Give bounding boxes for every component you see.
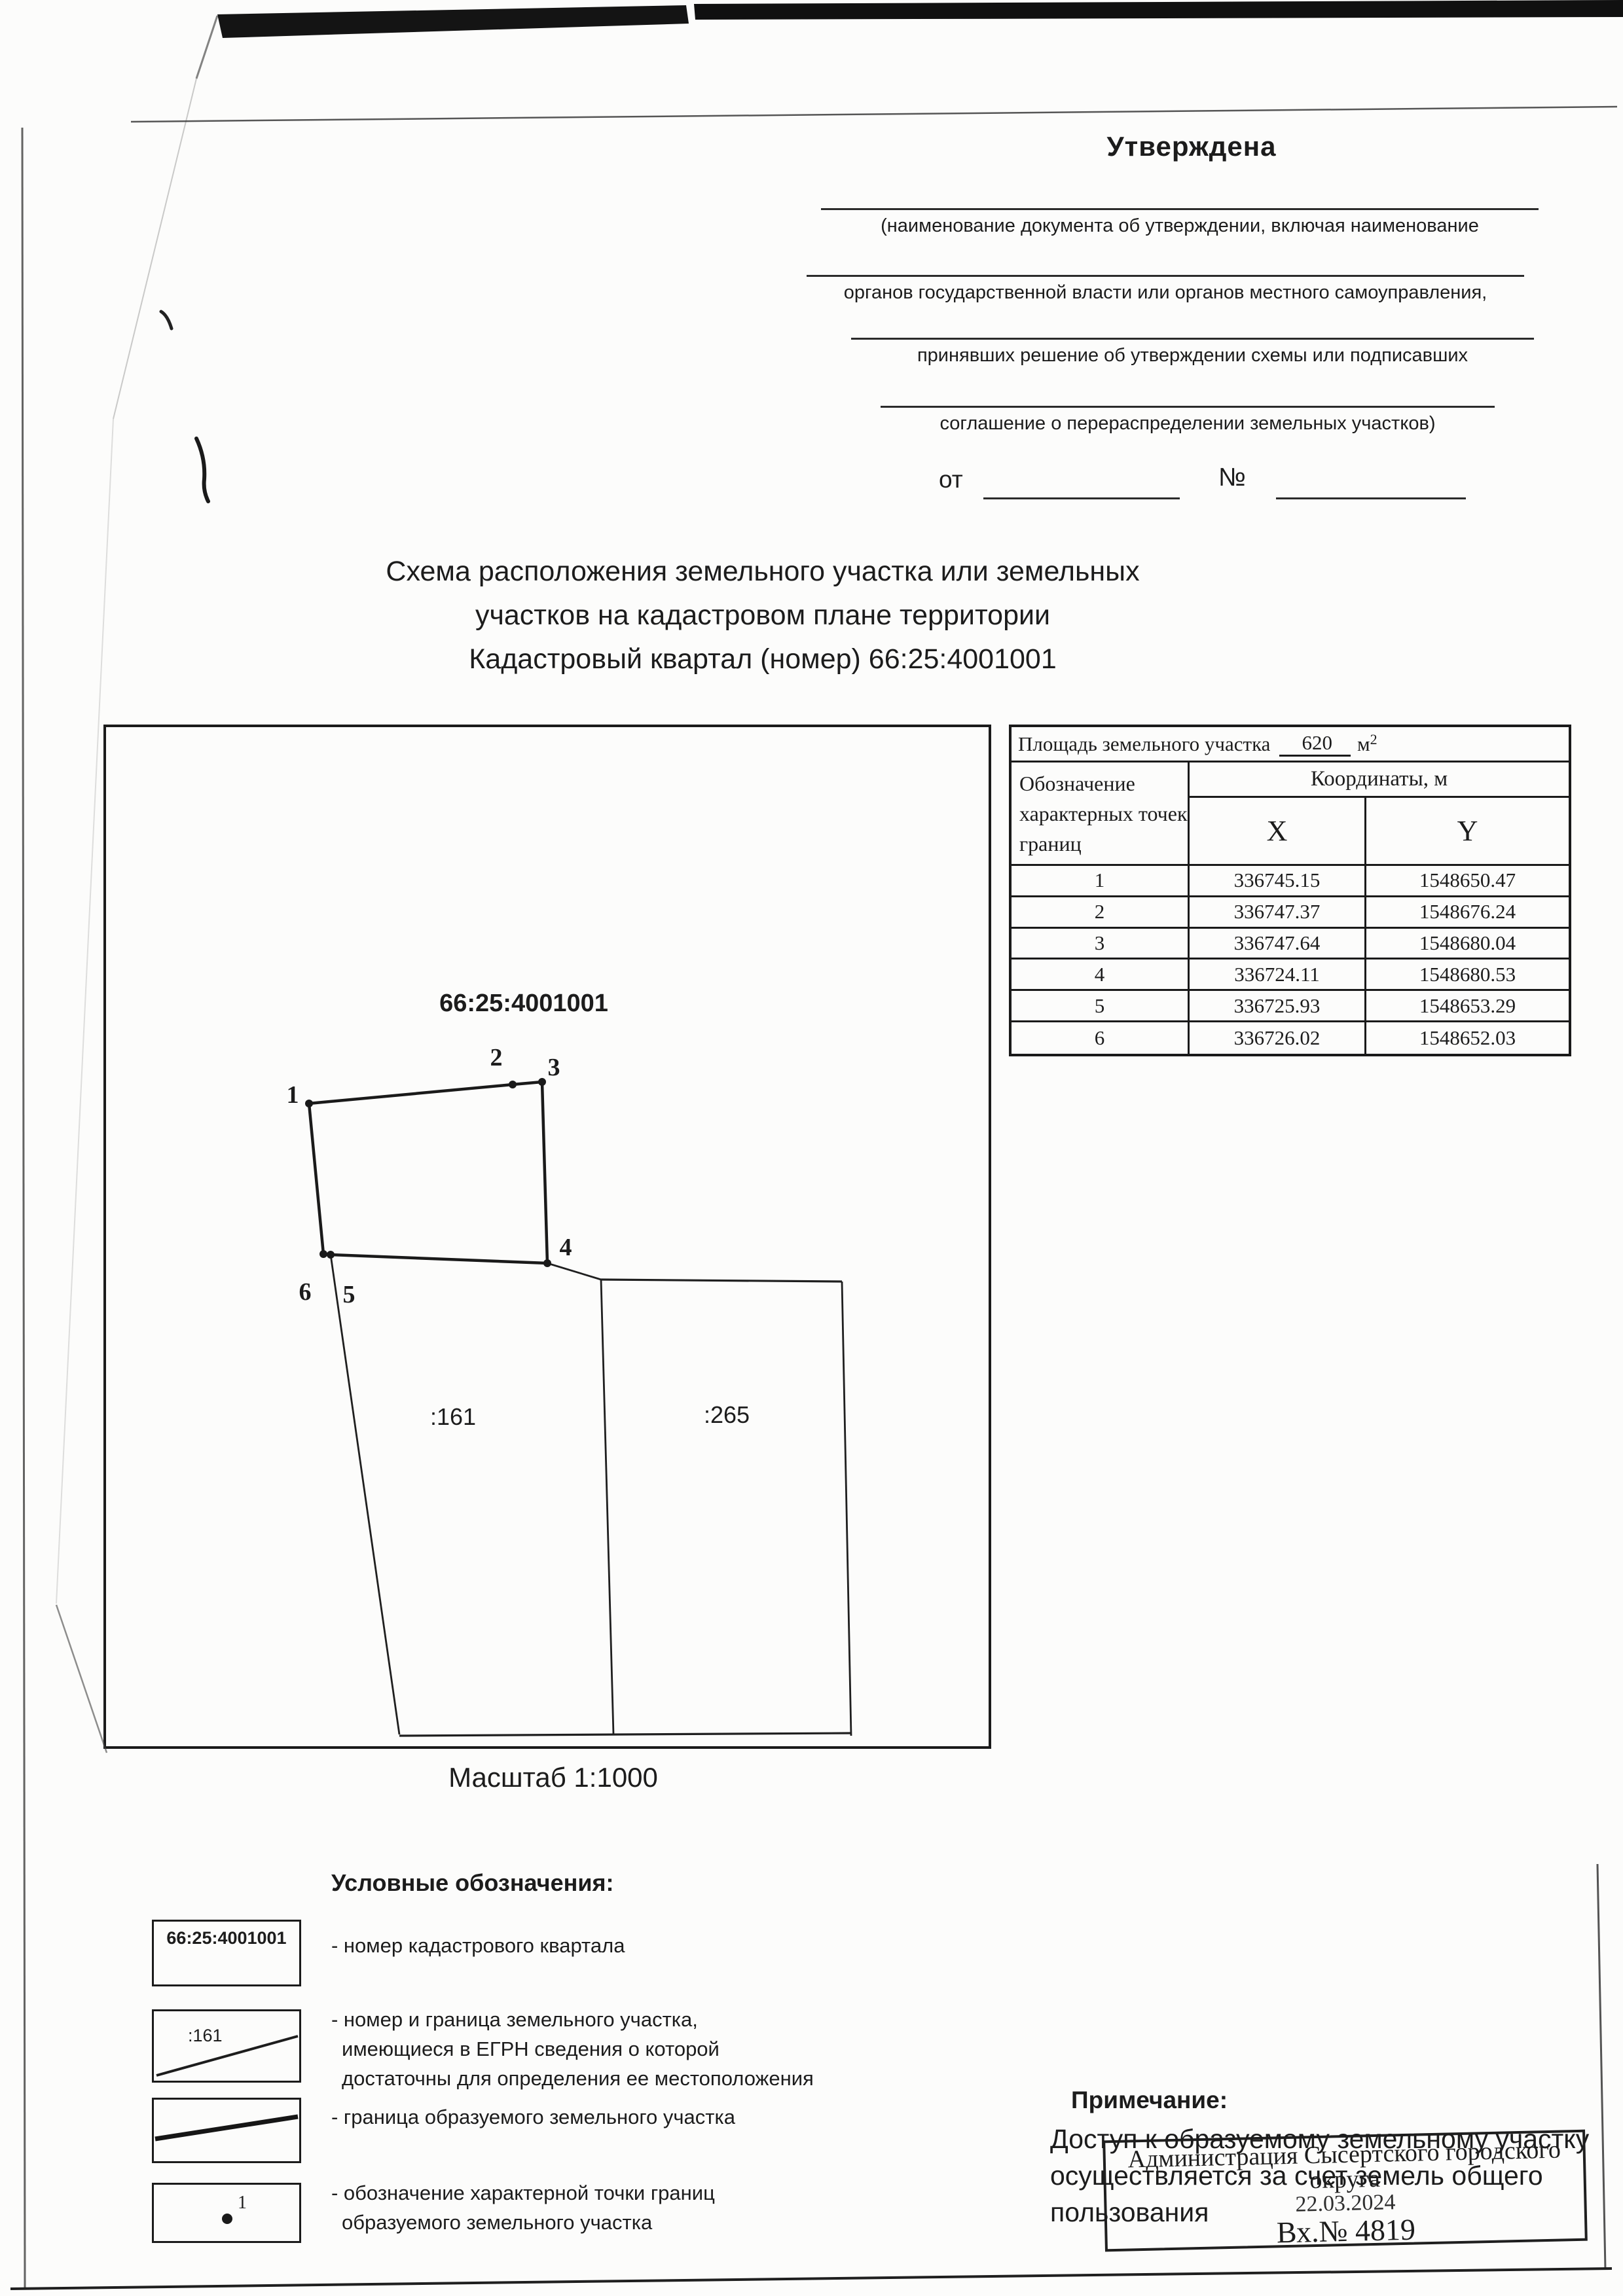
legend-quarter-number: 66:25:4001001	[166, 1928, 286, 1948]
fill-line-4: соглашение о перераспределении земельных…	[881, 406, 1495, 435]
parcel-265-right-boundary	[842, 1282, 851, 1736]
number-label: №	[1218, 463, 1246, 492]
note-line-3: пользования	[1050, 2194, 1613, 2231]
cadastral-map-drawing: 66:25:4001001 1 2 3 4 5 6 :	[106, 727, 989, 1746]
table-cell-x: 336747.37	[1190, 897, 1366, 929]
column-header-coordinates: Координаты, м	[1190, 762, 1569, 798]
title-line-2: участков на кадастровом плане территории	[196, 594, 1329, 637]
boundary-point-dot-4	[543, 1259, 551, 1267]
point-label-6: 6	[299, 1278, 312, 1306]
coordinates-grid: Обозначение характерных точек границ Коо…	[1012, 762, 1569, 1054]
parcel-265-label: :265	[704, 1401, 750, 1428]
document-title: Схема расположения земельного участка ил…	[196, 550, 1329, 681]
svg-text:1: 1	[238, 2193, 247, 2213]
scan-left-page-edge-upper	[113, 79, 196, 419]
legend-parcel-number: :161	[188, 2026, 223, 2046]
table-cell-point: 2	[1012, 897, 1190, 929]
parcels-bottom-boundary	[399, 1733, 851, 1736]
egrn-boundary-line-icon	[154, 2011, 299, 2081]
note-line-2: осуществляется за счет земель общего	[1050, 2157, 1613, 2194]
area-label: Площадь земельного участка	[1018, 732, 1270, 756]
legend-symbol-characteristic-point-box: 1	[152, 2183, 301, 2243]
note-line-1: Доступ к образуемому земельному участку	[1050, 2121, 1613, 2157]
scan-corner-diagonal	[196, 16, 217, 79]
cadastral-map-frame: 66:25:4001001 1 2 3 4 5 6 :	[103, 725, 991, 1749]
table-cell-y: 1548676.24	[1366, 897, 1569, 929]
pen-mark-large	[196, 439, 208, 501]
formed-boundary-line-icon	[154, 2100, 299, 2161]
parcel-161-left-boundary	[331, 1255, 399, 1734]
fill-line-3: принявших решение об утверждении схемы и…	[851, 338, 1534, 367]
map-scale-label: Масштаб 1:1000	[390, 1762, 717, 1793]
legend-symbol-egrn-parcel-box: :161	[152, 2009, 301, 2083]
column-header-y: Y	[1366, 798, 1569, 866]
date-from-label: от	[939, 466, 963, 493]
table-cell-x: 336724.11	[1190, 960, 1366, 991]
legend-symbol-quarter-number-box: 66:25:4001001	[152, 1920, 301, 1986]
parcel-265-left-boundary	[601, 1280, 613, 1734]
parcel-265-top-boundary	[601, 1280, 842, 1282]
table-cell-point: 6	[1012, 1022, 1190, 1054]
table-cell-x: 336747.64	[1190, 929, 1366, 960]
fill-line-2: органов государственной власти или орган…	[807, 275, 1524, 304]
table-cell-y: 1548650.47	[1366, 866, 1569, 897]
column-header-points: Обозначение характерных точек границ	[1012, 762, 1190, 866]
date-blank-line	[983, 497, 1180, 499]
table-cell-y: 1548652.03	[1366, 1022, 1569, 1054]
legend-heading: Условные обозначения:	[331, 1869, 613, 1897]
scanned-document-page: Утверждена (наименование документа об ут…	[0, 0, 1623, 2296]
point-label-1: 1	[287, 1081, 299, 1109]
scan-top-band-left	[217, 5, 689, 38]
legend-caption-egrn-parcel: - номер и граница земельного участка, им…	[331, 2005, 814, 2093]
scan-top-rule-line	[131, 107, 1617, 122]
table-cell-x: 336726.02	[1190, 1022, 1366, 1054]
area-row: Площадь земельного участка 620 м2	[1012, 727, 1569, 762]
table-cell-x: 336725.93	[1190, 991, 1366, 1022]
formed-parcel-boundary	[309, 1082, 547, 1263]
title-line-1: Схема расположения земельного участка ил…	[196, 550, 1329, 594]
table-cell-point: 1	[1012, 866, 1190, 897]
number-blank-line	[1276, 497, 1466, 499]
area-unit: м2	[1357, 732, 1377, 756]
fill-line-caption: (наименование документа об утверждении, …	[821, 215, 1539, 237]
boundary-point-dot-2	[509, 1081, 517, 1088]
parcel-161-label: :161	[430, 1403, 476, 1430]
fill-line-caption: соглашение о перераспределении земельных…	[881, 413, 1495, 435]
scan-left-edge-line	[22, 128, 25, 2287]
boundary-point-dot-3	[538, 1078, 546, 1086]
fill-line-1: (наименование документа об утверждении, …	[821, 208, 1539, 237]
table-cell-y: 1548680.53	[1366, 960, 1569, 991]
table-cell-point: 5	[1012, 991, 1190, 1022]
fill-line-caption: органов государственной власти или орган…	[807, 282, 1524, 304]
legend-caption-quarter-number: - номер кадастрового квартала	[331, 1931, 625, 1960]
scan-top-band-right	[694, 0, 1623, 20]
area-value: 620	[1279, 731, 1351, 757]
point-label-5: 5	[343, 1281, 356, 1308]
point-label-3: 3	[548, 1054, 560, 1081]
title-line-3: Кадастровый квартал (номер) 66:25:400100…	[196, 637, 1329, 681]
pen-mark-small	[161, 312, 172, 329]
legend-caption-characteristic-point: - обозначение характерной точки границ о…	[331, 2178, 715, 2237]
table-cell-y: 1548653.29	[1366, 991, 1569, 1022]
note-text: Доступ к образуемому земельному участку …	[1050, 2121, 1613, 2231]
table-cell-point: 3	[1012, 929, 1190, 960]
table-cell-y: 1548680.04	[1366, 929, 1569, 960]
scan-bottom-edge-line	[10, 2269, 1612, 2289]
table-cell-x: 336745.15	[1190, 866, 1366, 897]
note-heading: Примечание:	[1071, 2087, 1228, 2114]
scan-bottom-left-diagonal	[56, 1605, 107, 1753]
approved-heading: Утверждена	[1002, 131, 1381, 162]
legend-symbol-formed-boundary-box	[152, 2098, 301, 2163]
legend-caption-formed-boundary: - граница образуемого земельного участка	[331, 2102, 735, 2132]
boundary-point-dot-1	[305, 1100, 313, 1107]
point-label-4: 4	[560, 1234, 572, 1261]
table-cell-point: 4	[1012, 960, 1190, 991]
boundary-connector	[547, 1263, 601, 1280]
column-header-x: X	[1190, 798, 1366, 866]
characteristic-point-icon: 1	[154, 2185, 299, 2241]
boundary-point-dot-6	[319, 1250, 327, 1258]
map-quarter-number-label: 66:25:4001001	[439, 990, 608, 1017]
point-label-2: 2	[490, 1044, 503, 1071]
coordinates-table: Площадь земельного участка 620 м2 Обозна…	[1009, 725, 1571, 1056]
boundary-point-dot-5	[327, 1251, 335, 1259]
fill-line-caption: принявших решение об утверждении схемы и…	[851, 345, 1534, 367]
